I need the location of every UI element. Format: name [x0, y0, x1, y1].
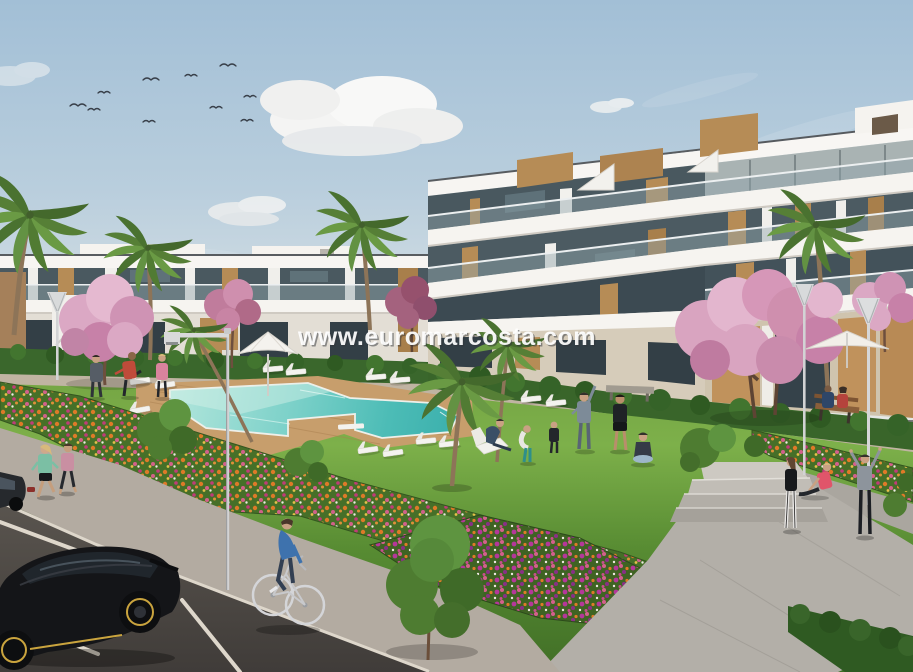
render-canvas: www.euromarcosta.com www.euromarcosta.co… [0, 0, 913, 672]
watermark-text: www.euromarcosta.com [297, 323, 596, 351]
property-render-image: www.euromarcosta.com www.euromarcosta.co… [0, 0, 913, 672]
watermark: www.euromarcosta.com www.euromarcosta.co… [297, 323, 598, 353]
